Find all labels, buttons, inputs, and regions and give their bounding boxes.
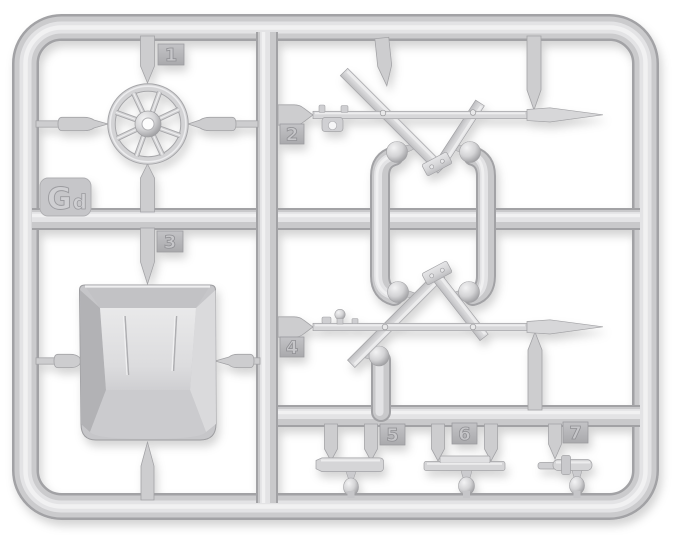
runner-horizontal-bottom (260, 413, 640, 417)
box-top-rim (85, 286, 210, 308)
sprue-render: 1 2 3 4 5 6 7 (0, 0, 675, 535)
gate-rod2-topright (527, 36, 541, 110)
sprue-code-tab: Gd (40, 178, 91, 217)
box-front-face (100, 308, 196, 390)
gate-box-bottom (141, 442, 154, 500)
part6-plate (440, 456, 490, 463)
gate-wheel-top (141, 36, 155, 83)
runner-vertical (264, 32, 268, 503)
part7-foot-stem (574, 491, 581, 498)
tag-4-label: 4 (286, 338, 299, 359)
gate-rod2-muzzle (278, 105, 313, 125)
tag-5: 5 (380, 424, 405, 446)
gate-rod2-topleft (375, 37, 394, 86)
gate-wheel-left-bullet (58, 117, 108, 130)
part2-front-sight (319, 105, 325, 113)
part4-bolt-2 (470, 324, 476, 330)
gate-wheel-bottom (141, 164, 155, 212)
support-tube-part4 (380, 360, 382, 412)
sprue-body: 1 2 3 4 5 6 7 (26, 28, 646, 507)
part2-bolt-2 (470, 110, 476, 116)
gate-box-left-bullet (54, 354, 82, 367)
part7-cylinder (553, 460, 592, 471)
runner-horizontal-top (32, 216, 640, 220)
tag-2: 2 (280, 124, 304, 146)
part6-foot-stem (463, 491, 470, 498)
gate-rod4-right-down (528, 332, 542, 410)
gate-part5-b (365, 424, 378, 461)
part-7-fitting (538, 456, 592, 499)
part4-knob (335, 309, 345, 319)
tag-3-label: 3 (164, 232, 177, 253)
gate-part7 (549, 424, 562, 459)
part4-blade-tip (527, 320, 603, 334)
tag-6: 6 (452, 423, 477, 445)
gate-box-top (141, 228, 155, 284)
box-bottom-face (90, 390, 206, 439)
ball-gate-1 (387, 142, 408, 163)
part2-blade-tip (527, 108, 603, 122)
tag-3: 3 (157, 231, 183, 253)
part5-foot-stem (348, 491, 355, 498)
gate-rod4-muzzle (278, 317, 313, 337)
gate-box-right-bullet (215, 354, 254, 367)
tag-1: 1 (158, 44, 184, 66)
part-4-rod-assembly (313, 261, 603, 368)
gate-part5-a (325, 424, 338, 461)
tag-4: 4 (280, 337, 304, 359)
part-3-box (80, 285, 217, 440)
ball-gate-4 (459, 282, 480, 303)
tag-1-label: 1 (165, 45, 178, 66)
tag-7: 7 (563, 422, 588, 444)
sprue-photo: 1 2 3 4 5 6 7 (0, 0, 675, 535)
gate-part6-a (432, 424, 445, 461)
part2-bolt-1 (380, 110, 386, 116)
gate-wheel-right-bullet (188, 117, 236, 130)
wheel-hub-hole (142, 118, 154, 130)
part-1-wheel (110, 86, 186, 162)
part-6-beam (424, 456, 505, 498)
ball-gate-3 (388, 282, 409, 303)
tag-5-label: 5 (386, 425, 399, 446)
part-2-rod-assembly (313, 68, 603, 176)
tag-6-label: 6 (458, 424, 471, 445)
tag-7-label: 7 (569, 423, 582, 444)
ball-gate-2 (460, 142, 481, 163)
part-5-beam (316, 458, 384, 498)
tag-2-label: 2 (286, 125, 299, 146)
gate-part6-b (485, 424, 498, 461)
part7-collar (562, 456, 571, 475)
part4-bolt-1 (382, 324, 388, 330)
